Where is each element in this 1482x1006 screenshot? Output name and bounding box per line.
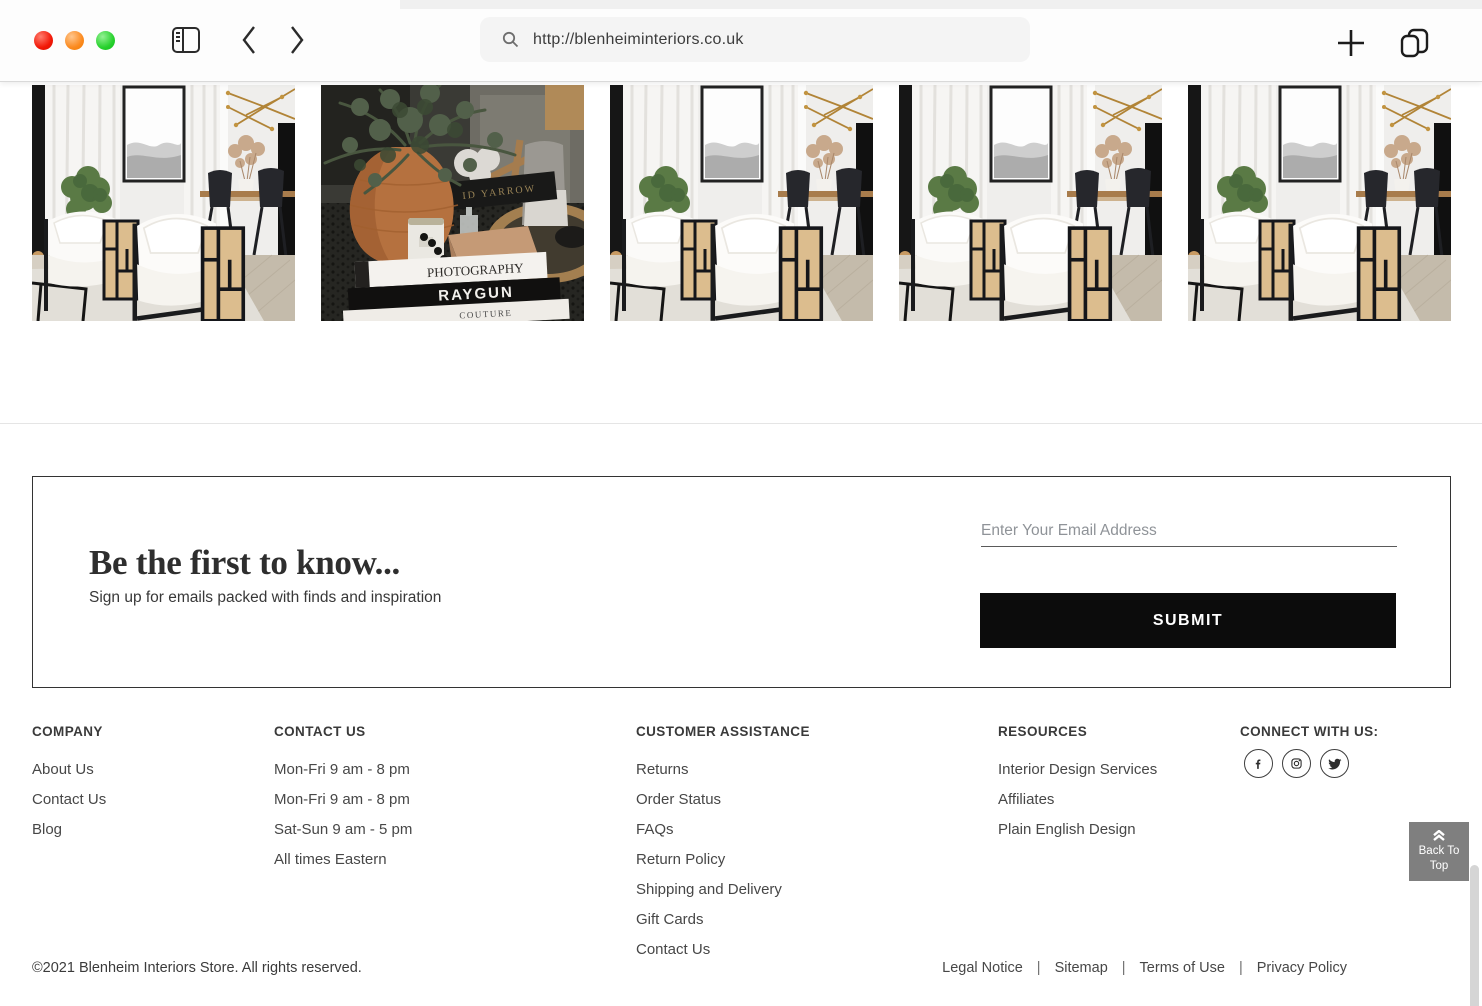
copy-tabs-icon [1397,26,1431,60]
footer-link-plain-english-design[interactable]: Plain English Design [998,815,1157,845]
living-room-illustration [32,85,295,321]
legal-link-privacy-policy[interactable]: Privacy Policy [1257,960,1347,976]
footer-link-return-policy[interactable]: Return Policy [636,845,810,875]
window-minimize-button[interactable] [65,31,84,50]
footer-heading-connect: CONNECT WITH US: [1240,724,1378,739]
sidebar-icon [171,26,201,54]
facebook-button[interactable] [1244,749,1273,778]
window-close-button[interactable] [34,31,53,50]
hours-timezone: All times Eastern [274,845,412,875]
instagram-icon [1290,757,1303,770]
footer-link-about-us[interactable]: About Us [32,755,106,785]
chevron-left-icon [240,24,258,56]
forward-button[interactable] [284,22,310,58]
living-room-illustration [610,85,873,321]
legal-bar: ©2021 Blenheim Interiors Store. All righ… [0,956,1482,982]
sidebar-toggle-button[interactable] [169,23,203,57]
footer-link-contact-us[interactable]: Contact Us [32,785,106,815]
legal-link-terms-of-use[interactable]: Terms of Use [1140,960,1225,976]
footer-link-blog[interactable]: Blog [32,815,106,845]
footer-column-customer-assistance: CUSTOMER ASSISTANCE Returns Order Status… [636,724,810,965]
page-content-ghost [400,0,1482,9]
plus-icon [1335,27,1367,59]
gallery-photo-living-room-2[interactable] [610,85,873,321]
new-tab-button[interactable] [1332,24,1370,62]
social-links [1244,749,1349,778]
back-button[interactable] [236,22,262,58]
footer-link-gift-cards[interactable]: Gift Cards [636,905,810,935]
address-bar[interactable]: http://blenheiminteriors.co.uk [480,17,1030,62]
footer-column-resources: RESOURCES Interior Design Services Affil… [998,724,1157,845]
legal-link-sitemap[interactable]: Sitemap [1055,960,1108,976]
tab-overview-button[interactable] [1395,24,1433,62]
photo-gallery: ID YARROW [32,85,1451,321]
back-to-top-label: Back To Top [1409,844,1469,874]
legal-link-legal-notice[interactable]: Legal Notice [942,960,1023,976]
footer-link-shipping-delivery[interactable]: Shipping and Delivery [636,875,810,905]
twitter-icon [1328,757,1342,771]
footer-link-faqs[interactable]: FAQs [636,815,810,845]
newsletter-signup-panel: Be the first to know... Sign up for emai… [32,476,1451,688]
gallery-photo-coffee-table[interactable]: ID YARROW [321,85,584,321]
hours-weekday-1: Mon-Fri 9 am - 8 pm [274,755,412,785]
gallery-photo-living-room-4[interactable] [1188,85,1451,321]
living-room-illustration [1188,85,1451,321]
gallery-photo-living-room-1[interactable] [32,85,295,321]
legal-separator: | [1037,960,1041,976]
hours-weekday-2: Mon-Fri 9 am - 8 pm [274,785,412,815]
footer-link-interior-design-services[interactable]: Interior Design Services [998,755,1157,785]
footer-column-contact-hours: CONTACT US Mon-Fri 9 am - 8 pm Mon-Fri 9… [274,724,412,875]
footer-heading-company: COMPANY [32,724,106,739]
search-icon [502,31,519,48]
gallery-photo-living-room-3[interactable] [899,85,1162,321]
twitter-button[interactable] [1320,749,1349,778]
back-to-top-button[interactable]: Back To Top [1409,822,1469,881]
instagram-button[interactable] [1282,749,1311,778]
legal-links: Legal Notice | Sitemap | Terms of Use | … [942,960,1347,976]
footer-link-returns[interactable]: Returns [636,755,810,785]
legal-separator: | [1239,960,1243,976]
section-divider [0,423,1482,424]
footer-heading-resources: RESOURCES [998,724,1157,739]
facebook-icon [1252,757,1265,770]
footer-link-affiliates[interactable]: Affiliates [998,785,1157,815]
chevron-right-icon [288,24,306,56]
url-text: http://blenheiminteriors.co.uk [533,31,744,49]
footer-heading-customer-assistance: CUSTOMER ASSISTANCE [636,724,810,739]
window-zoom-button[interactable] [96,31,115,50]
footer-heading-contact-us: CONTACT US [274,724,412,739]
living-room-illustration [899,85,1162,321]
copyright-text: ©2021 Blenheim Interiors Store. All righ… [32,960,362,976]
submit-button[interactable]: SUBMIT [980,593,1396,648]
newsletter-title: Be the first to know... [89,543,400,583]
newsletter-subtitle: Sign up for emails packed with finds and… [89,589,441,607]
email-input[interactable] [981,515,1397,547]
coffee-table-illustration: ID YARROW [321,85,584,321]
footer-column-connect: CONNECT WITH US: [1240,724,1378,739]
footer-column-company: COMPANY About Us Contact Us Blog [32,724,106,845]
double-chevron-up-icon [1433,830,1445,841]
hours-weekend: Sat-Sun 9 am - 5 pm [274,815,412,845]
vertical-scrollbar-thumb[interactable] [1470,865,1479,1006]
legal-separator: | [1122,960,1126,976]
browser-toolbar: http://blenheiminteriors.co.uk [0,0,1482,82]
footer-link-order-status[interactable]: Order Status [636,785,810,815]
